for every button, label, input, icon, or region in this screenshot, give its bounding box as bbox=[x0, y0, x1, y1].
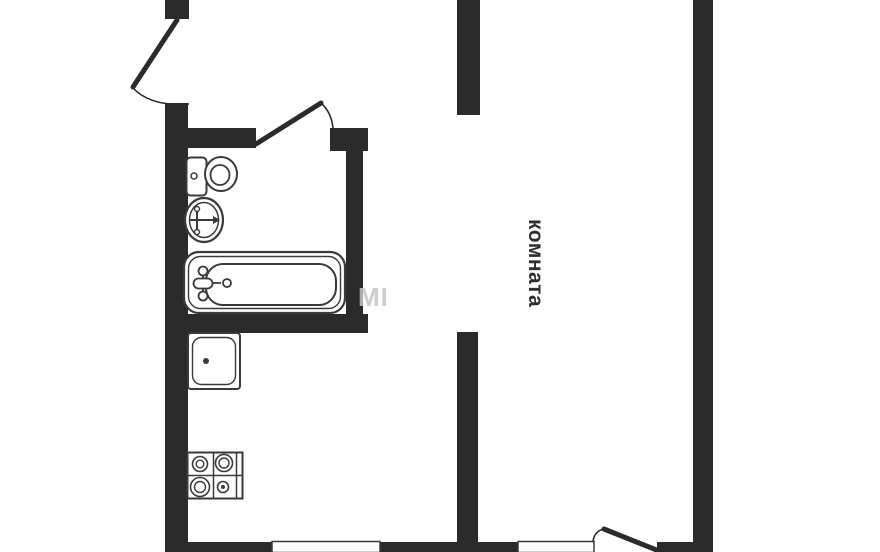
room-label: комната bbox=[523, 219, 547, 307]
wall-right bbox=[693, 0, 713, 552]
bathroom-door bbox=[256, 103, 333, 144]
bathroom-door-leaf bbox=[256, 103, 321, 144]
kitchen-sink-outer bbox=[188, 333, 240, 389]
threshold-room-door bbox=[518, 542, 594, 552]
entrance-door-leaf bbox=[133, 20, 177, 87]
wash-basin bbox=[185, 198, 223, 242]
burner-bottom-right-dot bbox=[221, 485, 225, 489]
wall-bottom-right bbox=[657, 542, 713, 552]
floor-plan-drawing bbox=[0, 0, 880, 552]
room-door-leaf bbox=[604, 529, 659, 551]
wall-left-top-stub bbox=[165, 0, 189, 19]
stove bbox=[188, 453, 243, 499]
entrance-door bbox=[133, 20, 189, 104]
bathtub-drain bbox=[223, 279, 231, 287]
threshold-kitchen-opening bbox=[272, 542, 380, 552]
wall-middle-top-stub bbox=[457, 0, 480, 115]
wall-middle-lower bbox=[457, 332, 478, 543]
kitchen-sink-drain bbox=[203, 358, 209, 364]
toilet bbox=[187, 157, 238, 196]
entrance-door-swing-arc bbox=[133, 88, 189, 104]
wall-bottom-left bbox=[165, 542, 272, 552]
bathtub-faucet-body bbox=[194, 279, 213, 289]
wall-bottom-middle bbox=[380, 542, 518, 552]
wall-bathroom-bottom bbox=[183, 314, 368, 333]
watermark-text: MI bbox=[358, 282, 389, 313]
bathtub bbox=[184, 252, 345, 313]
bathtub-faucet-knob-top bbox=[199, 267, 208, 276]
floor-plan: комната MI bbox=[0, 0, 880, 552]
bathtub-faucet-knob-bottom bbox=[199, 292, 208, 301]
room-door-swing-arc bbox=[593, 529, 604, 542]
kitchen-sink bbox=[188, 333, 240, 389]
wall-bathroom-top bbox=[183, 128, 256, 148]
bathroom-door-swing-arc bbox=[321, 103, 333, 129]
room-door bbox=[593, 529, 659, 551]
